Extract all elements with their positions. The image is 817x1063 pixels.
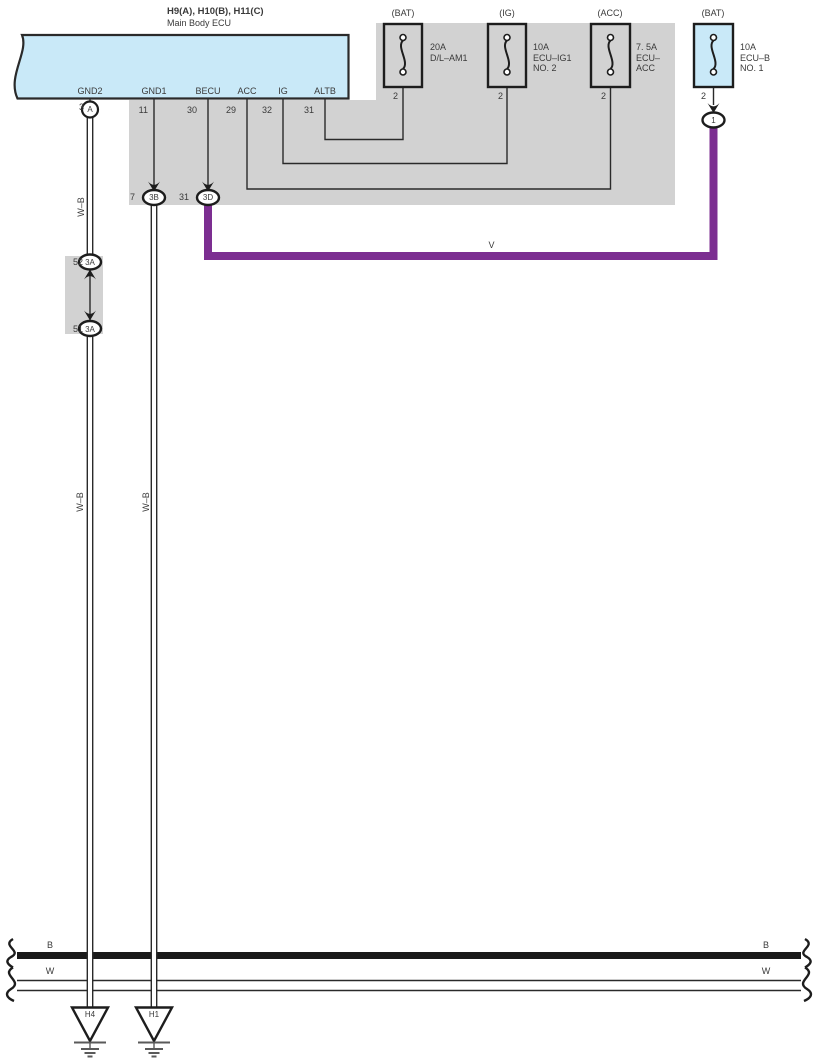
fuse-name-ecu-ig1: ECU–IG1 xyxy=(533,53,572,63)
wb-double-wires xyxy=(87,116,156,1007)
fuse-name-ecu-b: ECU–B xyxy=(740,53,770,63)
arrowheads xyxy=(84,103,720,321)
signal-wires xyxy=(90,87,714,322)
break-mark-right-b xyxy=(803,939,810,968)
cavity-7: 7 xyxy=(105,192,135,202)
connector-1-code: 1 xyxy=(699,116,729,125)
wire-color-wb-2: W–B xyxy=(75,487,85,517)
fuse-name2-ecu-acc: ACC xyxy=(636,63,655,73)
break-mark-left-w xyxy=(7,968,15,1002)
bus-label-b-left: B xyxy=(35,940,65,950)
fuse-name-ecu-acc: ECU– xyxy=(636,53,660,63)
diagram-linework xyxy=(0,0,817,1063)
pin-number-altb: 31 xyxy=(284,105,314,115)
bus-label-b-right: B xyxy=(751,940,781,950)
break-mark-left-b xyxy=(7,939,14,968)
pin-label-gnd2: GND2 xyxy=(60,86,120,96)
bus-b-black xyxy=(17,952,801,959)
fuse-name-dl-am1: D/L–AM1 xyxy=(430,53,468,63)
bus-w-white xyxy=(17,981,801,991)
wiring-diagram: H9(A), H10(B), H11(C) Main Body ECU GND2… xyxy=(0,0,817,1063)
ecu-subtitle: Main Body ECU xyxy=(167,18,231,28)
pin-number-becu: 30 xyxy=(167,105,197,115)
ecu-title: H9(A), H10(B), H11(C) xyxy=(167,7,264,17)
fuse-name2-ecu-ig1: NO. 2 xyxy=(533,63,557,73)
ground-label-h4: H4 xyxy=(75,1010,105,1019)
fuse-pin-ecu-ig1: 2 xyxy=(473,91,503,101)
wire-color-wb-1: W–B xyxy=(76,192,86,222)
wire-acc-to-fuse xyxy=(247,87,611,189)
pin-label-altb: ALTB xyxy=(295,86,355,96)
fuse-rating-ecu-b: 10A xyxy=(740,42,756,52)
connector-3d-code: 3D xyxy=(193,193,223,202)
wire-violet-v xyxy=(208,128,714,257)
pin-number-gnd1: 11 xyxy=(118,105,148,115)
connector-shapes xyxy=(79,102,725,337)
cavity-31: 31 xyxy=(159,192,189,202)
fuse-name2-ecu-b: NO. 1 xyxy=(740,63,764,73)
connector-3a-top-code: 3A xyxy=(75,258,105,267)
pin-number-ig: 32 xyxy=(242,105,272,115)
wire-color-wb-3: W–B xyxy=(141,487,151,517)
fuse-pin-dl-am1: 2 xyxy=(368,91,398,101)
fuse-pin-ecu-acc: 2 xyxy=(576,91,606,101)
pin-label-gnd1: GND1 xyxy=(124,86,184,96)
bus-label-w-left: W xyxy=(35,966,65,976)
fuse-rating-ecu-acc: 7. 5A xyxy=(636,42,657,52)
bus-label-w-right: W xyxy=(751,966,781,976)
fuse-pin-ecu-b: 2 xyxy=(676,91,706,101)
bus-break-marks xyxy=(7,939,811,1001)
ground-label-h1: H1 xyxy=(139,1010,169,1019)
fuse-type-ecu-ig1: (IG) xyxy=(472,8,542,18)
fuse-rating-ecu-ig1: 10A xyxy=(533,42,549,52)
fuse-type-dl-am1: (BAT) xyxy=(368,8,438,18)
fuse-type-ecu-b: (BAT) xyxy=(678,8,748,18)
fuse-rating-dl-am1: 20A xyxy=(430,42,446,52)
break-mark-right-w xyxy=(803,968,811,1002)
wire-color-v: V xyxy=(477,240,507,250)
fuse-type-ecu-acc: (ACC) xyxy=(575,8,645,18)
connector-3a-bottom-code: 3A xyxy=(75,325,105,334)
pin-number-acc: 29 xyxy=(206,105,236,115)
connector-a-code: A xyxy=(75,105,105,114)
